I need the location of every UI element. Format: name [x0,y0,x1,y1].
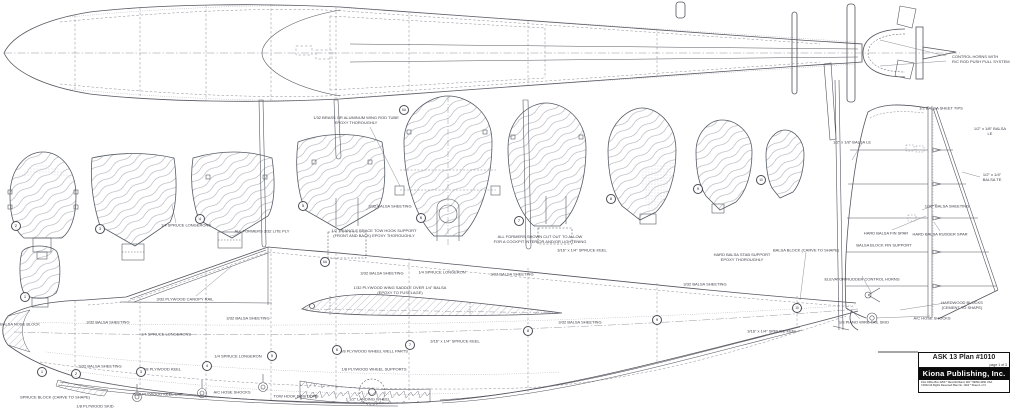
publisher-name: Kiona Publishing, Inc. [919,368,1009,380]
plan-annotation: HARD BALSA FIN SPAR [864,231,908,236]
station-number: 3 [136,367,146,377]
plan-annotation: A/C HOSE SHOCKS [913,316,950,321]
plan-annotation: 3/8 PLYWOOD KEEL [143,367,181,372]
plan-sheet: CONTROL HORNS WITH R/C ROD PUSH PULL SYS… [0,0,1024,409]
plan-annotation: ALL FORMERS 3/32 LITE PLY [235,229,290,234]
former-number: 8 [606,194,616,204]
plan-annotation: 3/16" x 1/4" SPRUCE KEEL [747,329,797,334]
plan-annotation: 1/8 PLYWOOD SKID [76,404,113,409]
station-number: 5 [267,351,277,361]
plan-annotation: 1/8 PIANO WIRE TAIL SKID [839,320,889,325]
plan-annotation: 1/32 BRASS OR ALUMINUM WING ROD TUBE EPO… [313,115,399,125]
plan-annotation: BALSA BLOCK FIN SUPPORT [856,243,911,248]
former-number: 6 [416,213,426,223]
annotation-layer: CONTROL HORNS WITH R/C ROD PUSH PULL SYS… [0,0,1024,409]
plan-annotation: 3/32 BALSA SHEETING [683,282,726,287]
plan-title: ASK 13 Plan #1010 [919,354,1009,361]
former-number: 2 [11,221,21,231]
former-number: 4 [195,214,205,224]
plan-annotation: 3/32 BALSA SHEETING [78,364,121,369]
plan-annotation: 3/32 PLYWOOD CANOPY RAIL [157,297,214,302]
page-info: page 1 of 3 [989,363,1007,367]
station-number: 10 [792,303,802,313]
plan-annotation: HARDWOOD BLOCKS (CEMENT TO SHAPE) [941,300,983,310]
plan-annotation: 1 1/2" LANDING WHEEL [346,397,391,402]
plan-annotation: 3/32 BALSA SHEETING [226,316,269,321]
plan-annotation: 3/16" x 1/4" SPRUCE KEEL [430,339,480,344]
station-number: 6A [320,257,330,267]
plan-annotation: SPRUCE BLOCK (CARVE TO SHAPE) [20,395,90,400]
plan-annotation: 1/4 SPRUCE LONGERONS [161,223,211,228]
plan-annotation: 1/2" x 1/4" BALSA TE [976,172,1008,182]
plan-annotation: 1/32 PLYWOOD WING SADDLE OVER 1/4" BALSA… [354,285,447,295]
plan-annotation: 3/16" x 1/4" SPRUCE KEEL [557,248,607,253]
plan-annotation: 3/32 BALSA SHEETING [558,320,601,325]
station-number: 4 [202,361,212,371]
plan-annotation: 1/2 BALSA SHEET TIPS [919,106,963,111]
plan-annotation: 3/32 BALSA SHEETING [368,204,411,209]
plan-annotation: ELEVATOR/RUDDER CONTROL HORNS [825,277,900,282]
former-number: 7 [514,216,524,226]
plan-annotation: A/C HOSE SHOCKS [213,390,250,395]
title-block-top: ASK 13 Plan #1010 page 1 of 3 [919,353,1009,368]
title-block: ASK 13 Plan #1010 page 1 of 3 Kiona Publ… [918,352,1010,393]
plan-annotation: 1/2" x 1/8" BALSA LE [973,126,1007,136]
station-number: 6 [332,345,342,355]
plan-annotation: 1/4 SPRUCE LONGERON [418,270,465,275]
station-number: 1 [37,367,47,377]
rights-line: ©2002 All Rights Reserved Plan No. 1010 … [921,384,1007,387]
plan-annotation: 3/32 BALSA SHEETING [86,320,129,325]
station-number: 8 [523,326,533,336]
title-block-fine-print: Post Office Box 4250 * West Richland, WA… [919,380,1009,392]
former-number: 5 [298,201,308,211]
station-number: 2 [71,369,81,379]
plan-annotation: 1/16" BALSA SHEETING [925,204,970,209]
plan-annotation: 3/32 PLYWOOD KEEL CAP [133,392,183,397]
station-number: 7 [405,340,415,350]
station-number: 9 [652,315,662,325]
plan-annotation: 3/32 BALSA SHEETING [360,271,403,276]
former-number: 6A [399,105,409,115]
plan-annotation: BALSA BLOCK (CARVE TO SHAPE) [773,248,839,253]
former-number: 10 [756,175,766,185]
former-number: 3 [95,224,105,234]
former-number: 1 [20,292,30,302]
plan-annotation: TOW HOOK POSITIONS [273,394,318,399]
plan-annotation: BALSA NOSE BLOCK [0,322,40,327]
plan-annotation: 1/4 SPRUCE LONGERON [214,354,261,359]
plan-annotation: 1/4 SPRUCE LONGERONS [141,332,191,337]
plan-annotation: 1/2" x 1/8" BALSA LE [833,140,871,145]
plan-annotation: ALL FORMERS SHOWN CUT OUT TO ALLOW FOR A… [494,234,587,244]
plan-annotation: 1/8 PLYWOOD WHEEL SUPPORTS [341,367,406,372]
plan-annotation: 3/32 BALSA SHEETING [490,272,533,277]
plan-annotation: HARD BALSA RUDDER SPAR [912,232,967,237]
former-number: 9 [693,184,703,194]
plan-annotation: 3/8 PLYWOOD WHEEL WELL PARTS [340,349,408,354]
plan-annotation: 1/2 TRIANGLE BRACE TOW HOOK SUPPORT (FRO… [331,228,416,238]
plan-annotation: CONTROL HORNS WITH R/C ROD PUSH PULL SYS… [952,54,1010,64]
plan-annotation: HARD BALSA STAB SUPPORT EPOXY THOROUGHLY [714,252,771,262]
